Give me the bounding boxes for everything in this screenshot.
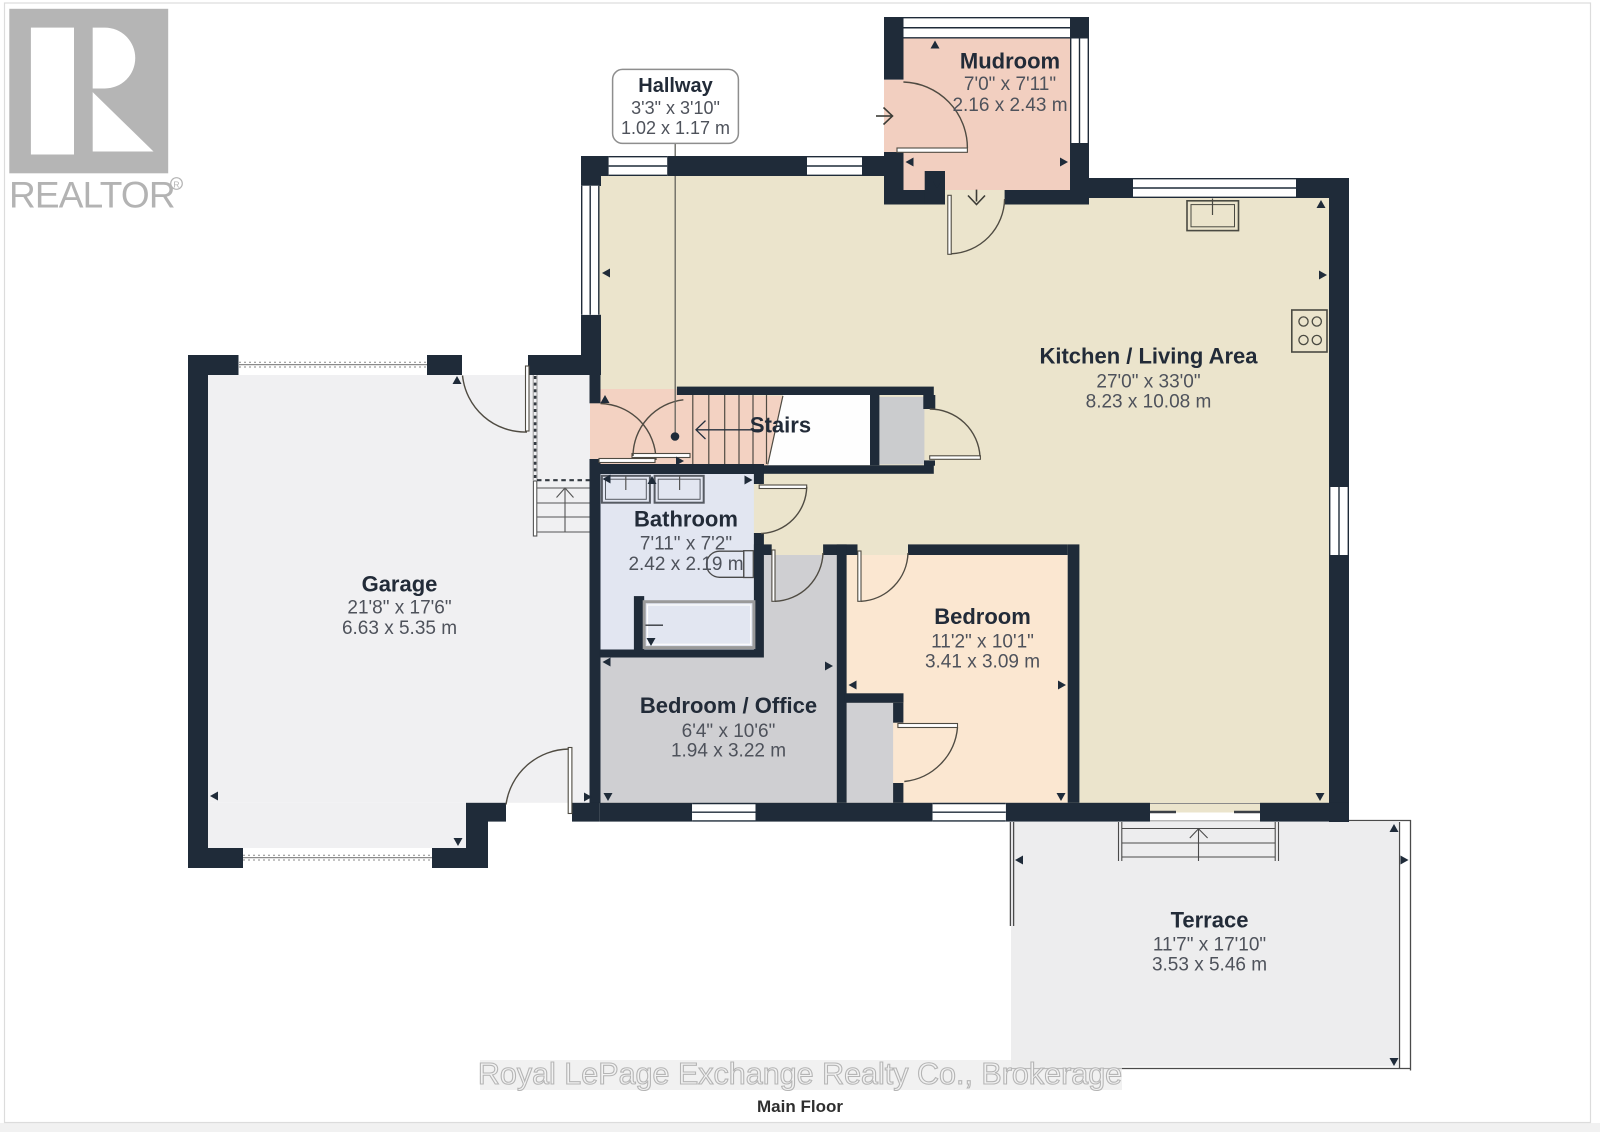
svg-text:Hallway: Hallway [638,75,713,97]
svg-text:Bathroom: Bathroom [634,507,738,532]
svg-text:3.53 x 5.46 m: 3.53 x 5.46 m [1152,955,1267,976]
svg-text:11'2" x 10'1": 11'2" x 10'1" [931,632,1034,653]
svg-text:8.23 x 10.08 m: 8.23 x 10.08 m [1086,392,1212,413]
svg-text:Main Floor: Main Floor [757,1097,843,1116]
svg-text:Mudroom: Mudroom [960,49,1060,74]
svg-text:27'0" x 33'0": 27'0" x 33'0" [1096,372,1200,393]
svg-text:Stairs: Stairs [750,413,811,438]
svg-text:21'8" x 17'6": 21'8" x 17'6" [347,598,451,619]
svg-text:2.42 x 2.19 m: 2.42 x 2.19 m [628,554,743,575]
svg-text:Garage: Garage [362,572,438,597]
svg-text:2.16 x 2.43 m: 2.16 x 2.43 m [952,95,1067,116]
svg-text:6'4" x 10'6": 6'4" x 10'6" [682,721,776,742]
svg-text:Royal LePage Exchange Realty C: Royal LePage Exchange Realty Co., Broker… [478,1057,1122,1091]
svg-text:6.63 x 5.35 m: 6.63 x 5.35 m [342,618,457,639]
svg-text:1.02 x 1.17 m: 1.02 x 1.17 m [621,118,730,138]
svg-text:7'11" x 7'2": 7'11" x 7'2" [640,534,732,555]
svg-text:Bedroom: Bedroom [934,604,1031,629]
svg-text:REALTOR: REALTOR [9,175,175,216]
svg-text:Terrace: Terrace [1171,908,1249,933]
svg-text:Kitchen / Living Area: Kitchen / Living Area [1039,344,1258,369]
svg-text:3'3" x 3'10": 3'3" x 3'10" [631,98,720,118]
svg-text:Bedroom / Office: Bedroom / Office [640,693,817,718]
svg-text:R: R [173,180,179,190]
svg-text:1.94 x 3.22 m: 1.94 x 3.22 m [671,741,786,762]
svg-text:11'7" x 17'10": 11'7" x 17'10" [1153,935,1266,956]
svg-text:3.41 x 3.09 m: 3.41 x 3.09 m [925,652,1040,673]
svg-text:7'0" x 7'11": 7'0" x 7'11" [964,74,1056,95]
